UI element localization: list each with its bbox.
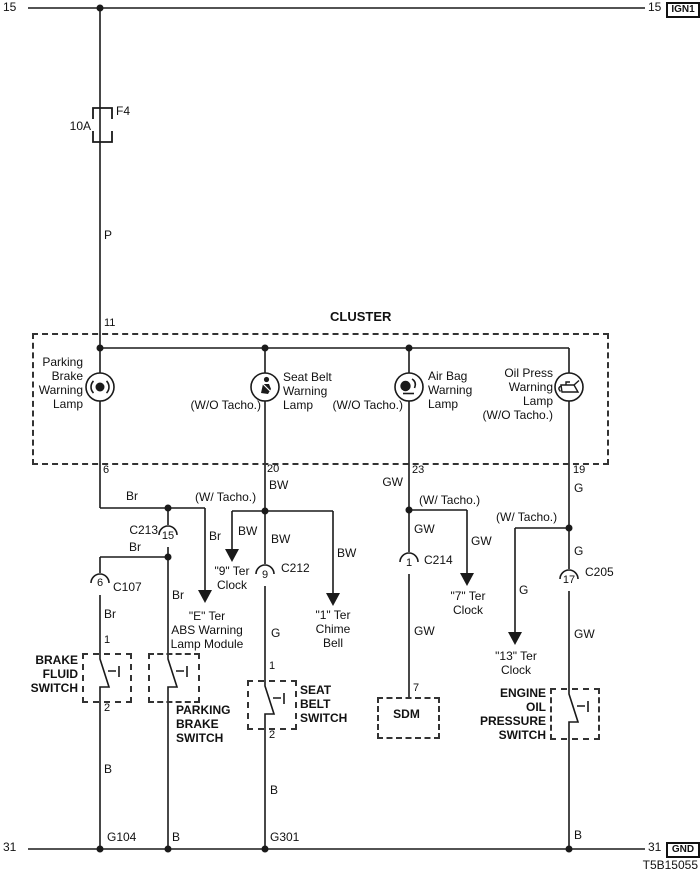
connector-c213-label: C213 bbox=[118, 524, 158, 537]
ground-left-terminal: 31 bbox=[3, 841, 16, 854]
clock9-wire-bw: BW bbox=[238, 525, 257, 538]
cluster-pin-19: 19 bbox=[573, 464, 585, 477]
chime-label-1: "1" Ter bbox=[273, 609, 393, 622]
brake-fluid-label-1: BRAKE bbox=[18, 654, 78, 667]
airbag-wo-tacho-label: (W/O Tacho.) bbox=[318, 399, 403, 412]
wiring-diagram-page: IGN1 GND 15 15 31 31 F4 10A P CLUSTER 11… bbox=[0, 0, 700, 875]
clock13-wire-g: G bbox=[519, 584, 528, 597]
clock7-arrow-icon bbox=[460, 573, 474, 586]
oil-switch-label-1: ENGINE bbox=[466, 687, 546, 700]
connector-c107-pin: 6 bbox=[85, 577, 115, 590]
parking-switch-label-1: PARKING bbox=[176, 704, 230, 717]
brake-fluid-pin-bottom: 2 bbox=[104, 702, 110, 715]
connector-c107-label: C107 bbox=[113, 581, 142, 594]
airbag-w-tacho-label: (W/ Tacho.) bbox=[419, 494, 480, 507]
airbag-wire-gw-3: GW bbox=[414, 625, 435, 638]
seatbelt-w-tacho-label: (W/ Tacho.) bbox=[195, 491, 256, 504]
doc-code-label: T5B15055 bbox=[598, 859, 698, 872]
seatbelt-lamp-label-1: Seat Belt bbox=[283, 371, 332, 384]
clock13-label-1: "13" Ter bbox=[456, 650, 576, 663]
brake-fluid-switch-box bbox=[82, 653, 132, 703]
sdm-pin: 7 bbox=[413, 682, 419, 695]
wire-p-label: P bbox=[104, 229, 112, 242]
oil-lamp-label-1: Oil Press bbox=[473, 367, 553, 380]
cluster-pin-20: 20 bbox=[267, 463, 279, 476]
seatbelt-wire-bw-2: BW bbox=[271, 533, 290, 546]
oil-wire-g-2: G bbox=[574, 545, 583, 558]
oil-switch-label-2: OIL bbox=[466, 701, 546, 714]
parking-wire-br-3: Br bbox=[104, 608, 116, 621]
seatbelt-wire-bw-1: BW bbox=[269, 479, 288, 492]
connector-c214-label: C214 bbox=[424, 554, 453, 567]
airbag-lamp-label-1: Air Bag bbox=[428, 370, 467, 383]
chime-label-2: Chime bbox=[273, 623, 393, 636]
parking-brake-switch-box bbox=[148, 653, 200, 703]
parking-switch-label-2: BRAKE bbox=[176, 718, 219, 731]
airbag-wire-gw-2: GW bbox=[414, 523, 435, 536]
oil-lamp-label-4: (W/O Tacho.) bbox=[473, 409, 553, 422]
brake-fluid-pin-top: 1 bbox=[104, 634, 110, 647]
connector-c213-pin: 15 bbox=[153, 530, 183, 543]
oil-w-tacho-label: (W/ Tacho.) bbox=[496, 511, 557, 524]
seatbelt-wo-tacho-label: (W/O Tacho.) bbox=[176, 399, 261, 412]
parking-wire-b-2: B bbox=[172, 831, 180, 844]
parking-wire-b-1: B bbox=[104, 763, 112, 776]
ground-g104-label: G104 bbox=[107, 831, 136, 844]
connector-c205-pin: 17 bbox=[554, 574, 584, 587]
connector-c214-pin: 1 bbox=[394, 557, 424, 570]
oil-switch-label-3: PRESSURE bbox=[466, 715, 546, 728]
parking-lamp-label-1: Parking bbox=[13, 356, 83, 369]
oil-pressure-switch-box bbox=[550, 688, 600, 740]
seatbelt-switch-label-2: BELT bbox=[300, 698, 330, 711]
clock7-label-2: Clock bbox=[408, 604, 528, 617]
cluster-pin-6: 6 bbox=[103, 464, 109, 477]
top-left-terminal: 15 bbox=[3, 1, 16, 14]
parking-lamp-label-2: Brake bbox=[13, 370, 83, 383]
cluster-input-pin: 11 bbox=[104, 317, 115, 330]
connector-c212-label: C212 bbox=[281, 562, 310, 575]
fuse-name-label: F4 bbox=[116, 105, 130, 118]
seatbelt-pin-top: 1 bbox=[269, 660, 275, 673]
clock13-label-2: Clock bbox=[456, 664, 576, 677]
parking-wire-br-2: Br bbox=[129, 541, 141, 554]
seatbelt-switch-label-1: SEAT bbox=[300, 684, 331, 697]
seatbelt-switch-label-3: SWITCH bbox=[300, 712, 347, 725]
cluster-pin-23: 23 bbox=[412, 464, 424, 477]
fuse-icon bbox=[93, 108, 112, 142]
seatbelt-wire-b: B bbox=[270, 784, 278, 797]
airbag-wire-gw-1: GW bbox=[373, 476, 403, 489]
ground-g301-label: G301 bbox=[270, 831, 299, 844]
ground-right-terminal: 31 bbox=[648, 841, 661, 854]
clock13-arrow-icon bbox=[508, 632, 522, 645]
parking-lamp-label-3: Warning bbox=[13, 384, 83, 397]
chime-label-3: Bell bbox=[273, 637, 393, 650]
seatbelt-pin-bottom: 2 bbox=[269, 729, 275, 742]
ign1-tag: IGN1 bbox=[666, 2, 700, 18]
chime-wire-bw: BW bbox=[337, 547, 356, 560]
seatbelt-lamp-label-3: Lamp bbox=[283, 399, 313, 412]
gnd-tag: GND bbox=[666, 842, 700, 858]
oil-switch-label-4: SWITCH bbox=[466, 729, 546, 742]
abs-module-label-1: "E" Ter bbox=[147, 610, 267, 623]
top-right-terminal: 15 bbox=[648, 1, 661, 14]
airbag-lamp-label-2: Warning bbox=[428, 384, 472, 397]
parking-lamp-label-4: Lamp bbox=[13, 398, 83, 411]
chime-bell-arrow-icon bbox=[326, 593, 340, 606]
cluster-title: CLUSTER bbox=[330, 310, 391, 323]
oil-wire-gw: GW bbox=[574, 628, 595, 641]
abs-module-label-3: Lamp Module bbox=[147, 638, 267, 651]
oil-lamp-label-3: Lamp bbox=[473, 395, 553, 408]
oil-wire-b: B bbox=[574, 829, 582, 842]
clock7-label-1: "7" Ter bbox=[408, 590, 528, 603]
clock9-arrow-icon bbox=[225, 549, 239, 562]
connector-c205-label: C205 bbox=[585, 566, 614, 579]
seatbelt-lamp-label-2: Warning bbox=[283, 385, 327, 398]
parking-branch-wire-br: Br bbox=[209, 530, 221, 543]
fuse-rating-label: 10A bbox=[51, 120, 91, 133]
connector-c212-pin: 9 bbox=[250, 569, 280, 582]
abs-module-label-2: ABS Warning bbox=[147, 624, 267, 637]
sdm-label: SDM bbox=[377, 708, 436, 721]
clock7-wire-gw: GW bbox=[471, 535, 492, 548]
oil-lamp-label-2: Warning bbox=[473, 381, 553, 394]
brake-fluid-label-2: FLUID bbox=[18, 668, 78, 681]
parking-wire-br-1: Br bbox=[126, 490, 138, 503]
seat-belt-switch-box bbox=[247, 680, 297, 730]
parking-switch-label-3: SWITCH bbox=[176, 732, 223, 745]
seatbelt-wire-g: G bbox=[271, 627, 280, 640]
airbag-lamp-label-3: Lamp bbox=[428, 398, 458, 411]
brake-fluid-label-3: SWITCH bbox=[18, 682, 78, 695]
oil-wire-g-1: G bbox=[574, 482, 583, 495]
